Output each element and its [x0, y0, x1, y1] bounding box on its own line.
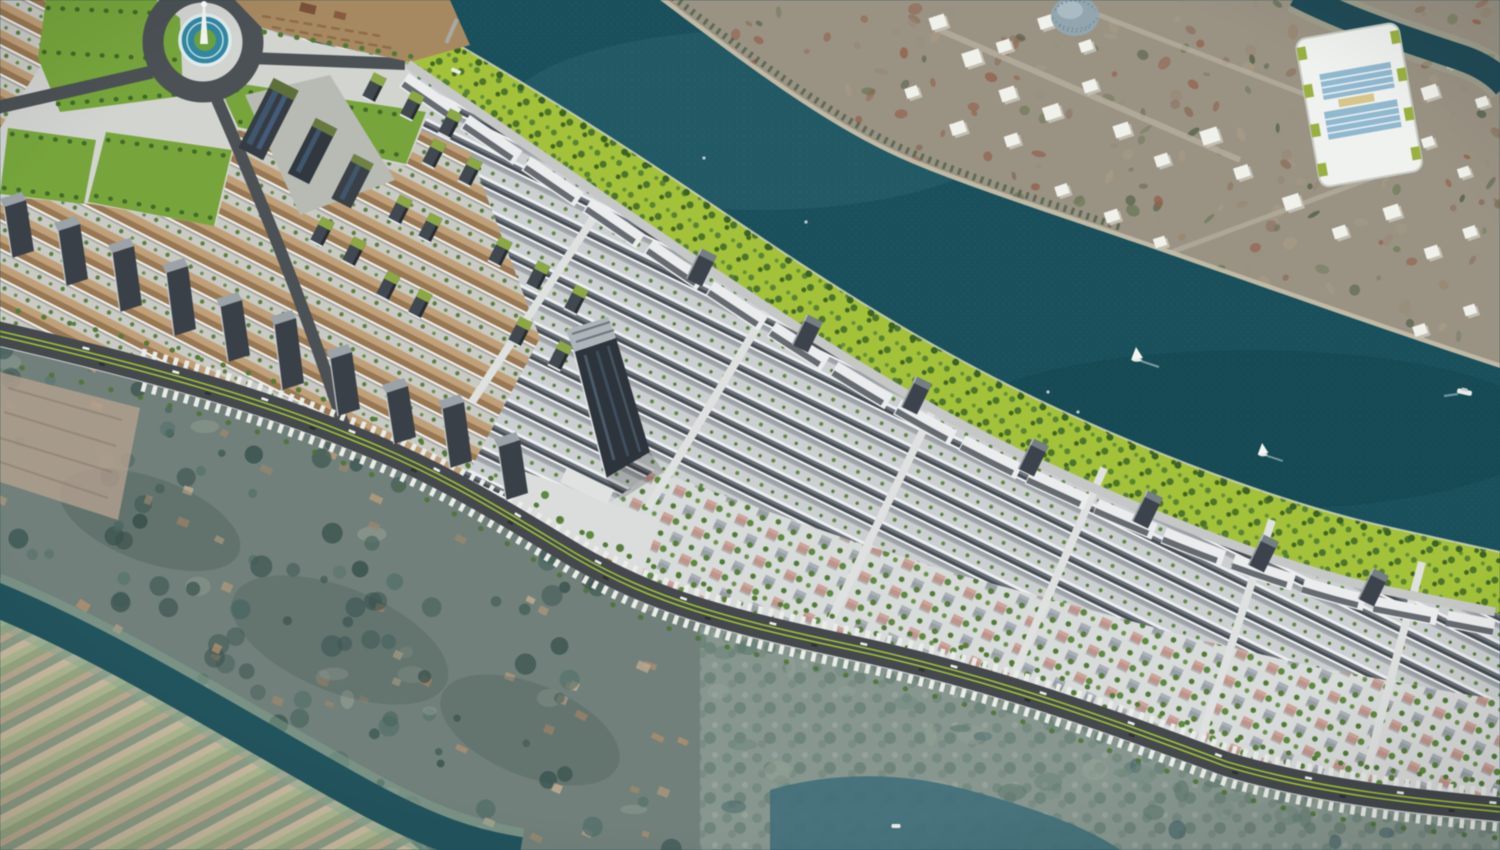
- aerial-masterplan-render: [0, 0, 1500, 850]
- vignette: [0, 0, 1500, 850]
- scene-canvas: [0, 0, 1500, 850]
